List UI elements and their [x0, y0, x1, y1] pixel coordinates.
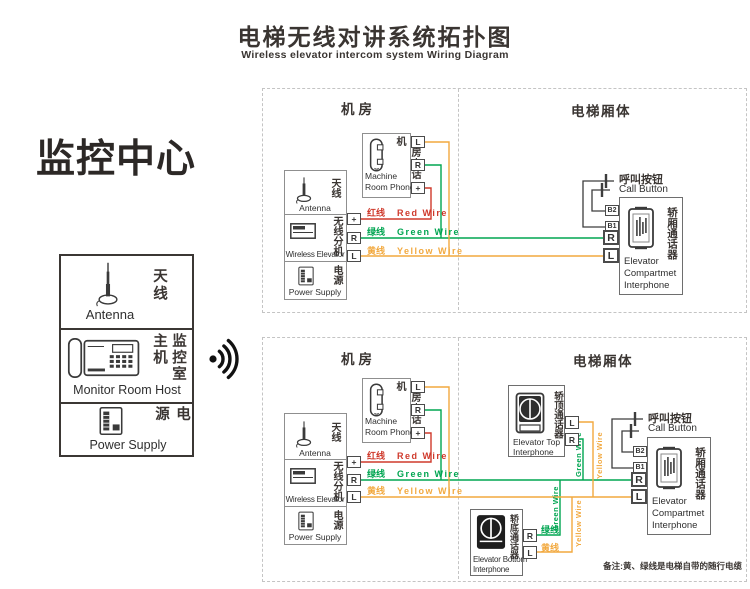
wireless-unit-box-bottom: 天线 Antenna 无线分机 Wireless Elevator 电源 Pow…: [284, 413, 347, 545]
unit-power-en: Power Supply: [287, 532, 343, 542]
terminal-R: R: [565, 433, 579, 446]
power-supply-icon: [99, 406, 123, 436]
unit-divider: [285, 214, 346, 215]
top-interphone-en1: Elevator Top: [513, 437, 560, 447]
green-wire-short-label: 绿线: [541, 523, 559, 536]
terminal-L: L: [523, 546, 537, 559]
antenna-icon: [94, 261, 122, 307]
elevator-top-interphone-box: 轿顶通话器 Elevator Top Interphone: [508, 385, 565, 457]
bottom-interphone-en1: Elevator Bottom: [473, 555, 527, 564]
terminal-plus: +: [411, 427, 425, 439]
wiring-diagram-page: 电梯无线对讲系统拓扑图 Wireless elevator intercom s…: [0, 0, 750, 589]
terminal-B2: B2: [605, 205, 619, 216]
speaker-icon: [515, 392, 545, 434]
wireless-extension-icon: [290, 223, 316, 239]
handset-icon: [367, 138, 387, 172]
bottom-interphone-en2: Interphone: [473, 565, 509, 574]
compartment-en1: Elevator: [624, 256, 659, 267]
unit-power-zh: 电源: [329, 265, 344, 289]
terminal-R: R: [347, 474, 361, 486]
intercom-icon: [655, 446, 683, 490]
compartment-en3: Interphone: [652, 520, 697, 531]
terminal-R: R: [411, 404, 425, 416]
terminal-R: R: [411, 159, 425, 171]
unit-power-zh: 电源: [329, 510, 344, 534]
compartment-zh: 轿厢通话器: [665, 207, 680, 275]
terminal-plus: +: [411, 182, 425, 194]
terminal-L: L: [411, 381, 425, 393]
panel-divider: [61, 328, 192, 330]
machine-room-phone-en2: Room Phone: [365, 427, 415, 437]
unit-antenna-en: Antenna: [287, 203, 343, 213]
machine-room-phone-en2: Room Phone: [365, 182, 415, 192]
panel-divider: [61, 402, 192, 404]
unit-antenna-zh: 天线: [327, 422, 342, 448]
power-label-zh: 电源: [151, 406, 193, 440]
elevator-car-header-top: 电梯厢体: [571, 100, 631, 120]
power-supply-icon: [298, 266, 314, 286]
unit-wireless-en: Wireless Elevator: [285, 495, 345, 504]
monitor-center-panel: 天线 Antenna 监控室主机 Monitor Room Host 电源 Po…: [59, 254, 194, 457]
terminal-plus: +: [347, 213, 361, 225]
wireless-extension-icon: [290, 468, 316, 484]
machine-room-phone-box-top: 机房电话机 Machine Room Phone: [362, 133, 411, 198]
call-button-label-en: Call Button: [648, 423, 697, 434]
terminal-L: L: [411, 136, 425, 148]
unit-wireless-en: Wireless Elevator: [285, 250, 345, 259]
antenna-label-zh: 天线: [149, 268, 170, 306]
terminal-L: L: [347, 491, 361, 503]
yellow-wire-vertical-label: Yellow Wire: [574, 500, 583, 547]
machine-room-header-bottom: 机房: [341, 348, 376, 368]
terminal-L: L: [347, 250, 361, 262]
green-wire-label: 绿线Green Wire: [367, 225, 460, 238]
handset-icon: [367, 383, 387, 417]
unit-divider: [285, 261, 346, 262]
compartment-interphone-box-top: 轿厢通话器 Elevator Compartmet Interphone: [619, 197, 683, 295]
red-wire-label: 红线Red Wire: [367, 206, 448, 219]
call-button-label-en: Call Button: [619, 184, 668, 195]
terminal-R: R: [631, 472, 647, 487]
elevator-bottom-interphone-box: 轿底通话器 Elevator Bottom Interphone: [470, 509, 523, 576]
terminal-plus: +: [347, 456, 361, 468]
compartment-en2: Compartmet: [624, 268, 676, 279]
yellow-wire-label: 黄线Yellow Wire: [367, 484, 463, 497]
machine-room-header-top: 机房: [341, 98, 376, 118]
terminal-L: L: [603, 248, 619, 263]
unit-antenna-en: Antenna: [287, 448, 343, 458]
power-supply-icon: [298, 511, 314, 531]
wireless-signal-icon: [206, 336, 252, 382]
host-label-en: Monitor Room Host: [63, 383, 191, 397]
wireless-unit-box-top: 天线 Antenna 无线分机 Wireless Elevator 电源 Pow…: [284, 170, 347, 300]
terminal-B2: B2: [633, 446, 647, 457]
yellow-wire-label: 黄线Yellow Wire: [367, 244, 463, 257]
terminal-L: L: [631, 489, 647, 504]
compartment-zh: 轿厢通话器: [693, 447, 708, 515]
terminal-R: R: [603, 230, 619, 245]
footnote: 备注:黄、绿线是电梯自带的随行电缆: [558, 560, 742, 572]
yellow-wire-vertical-label: Yellow Wire: [595, 432, 604, 479]
machine-room-phone-en1: Machine: [365, 171, 397, 181]
intercom-icon: [627, 206, 655, 250]
compartment-en2: Compartmet: [652, 508, 704, 519]
machine-room-phone-box-bottom: 机房电话机 Machine Room Phone: [362, 378, 411, 443]
speaker-dark-icon: [476, 514, 506, 550]
green-wire-label: 绿线Green Wire: [367, 467, 460, 480]
power-label-en: Power Supply: [69, 438, 187, 452]
unit-divider: [285, 459, 346, 460]
desk-phone-icon: [67, 336, 141, 380]
terminal-R: R: [347, 232, 361, 244]
compartment-interphone-box-bottom: 轿厢通话器 Elevator Compartmet Interphone: [647, 437, 711, 535]
antenna-label-en: Antenna: [75, 307, 145, 322]
top-interphone-en2: Interphone: [513, 447, 554, 457]
terminal-L: L: [565, 416, 579, 429]
machine-room-phone-en1: Machine: [365, 416, 397, 426]
compartment-en1: Elevator: [652, 496, 687, 507]
elevator-car-header-bottom: 电梯厢体: [573, 350, 633, 370]
yellow-wire-short-label: 黄线: [541, 541, 559, 554]
antenna-icon: [295, 176, 313, 204]
unit-divider: [285, 506, 346, 507]
compartment-en3: Interphone: [624, 280, 669, 291]
red-wire-label: 红线Red Wire: [367, 449, 448, 462]
unit-antenna-zh: 天线: [327, 178, 342, 204]
unit-power-en: Power Supply: [287, 287, 343, 297]
antenna-icon: [295, 420, 313, 448]
terminal-R: R: [523, 529, 537, 542]
